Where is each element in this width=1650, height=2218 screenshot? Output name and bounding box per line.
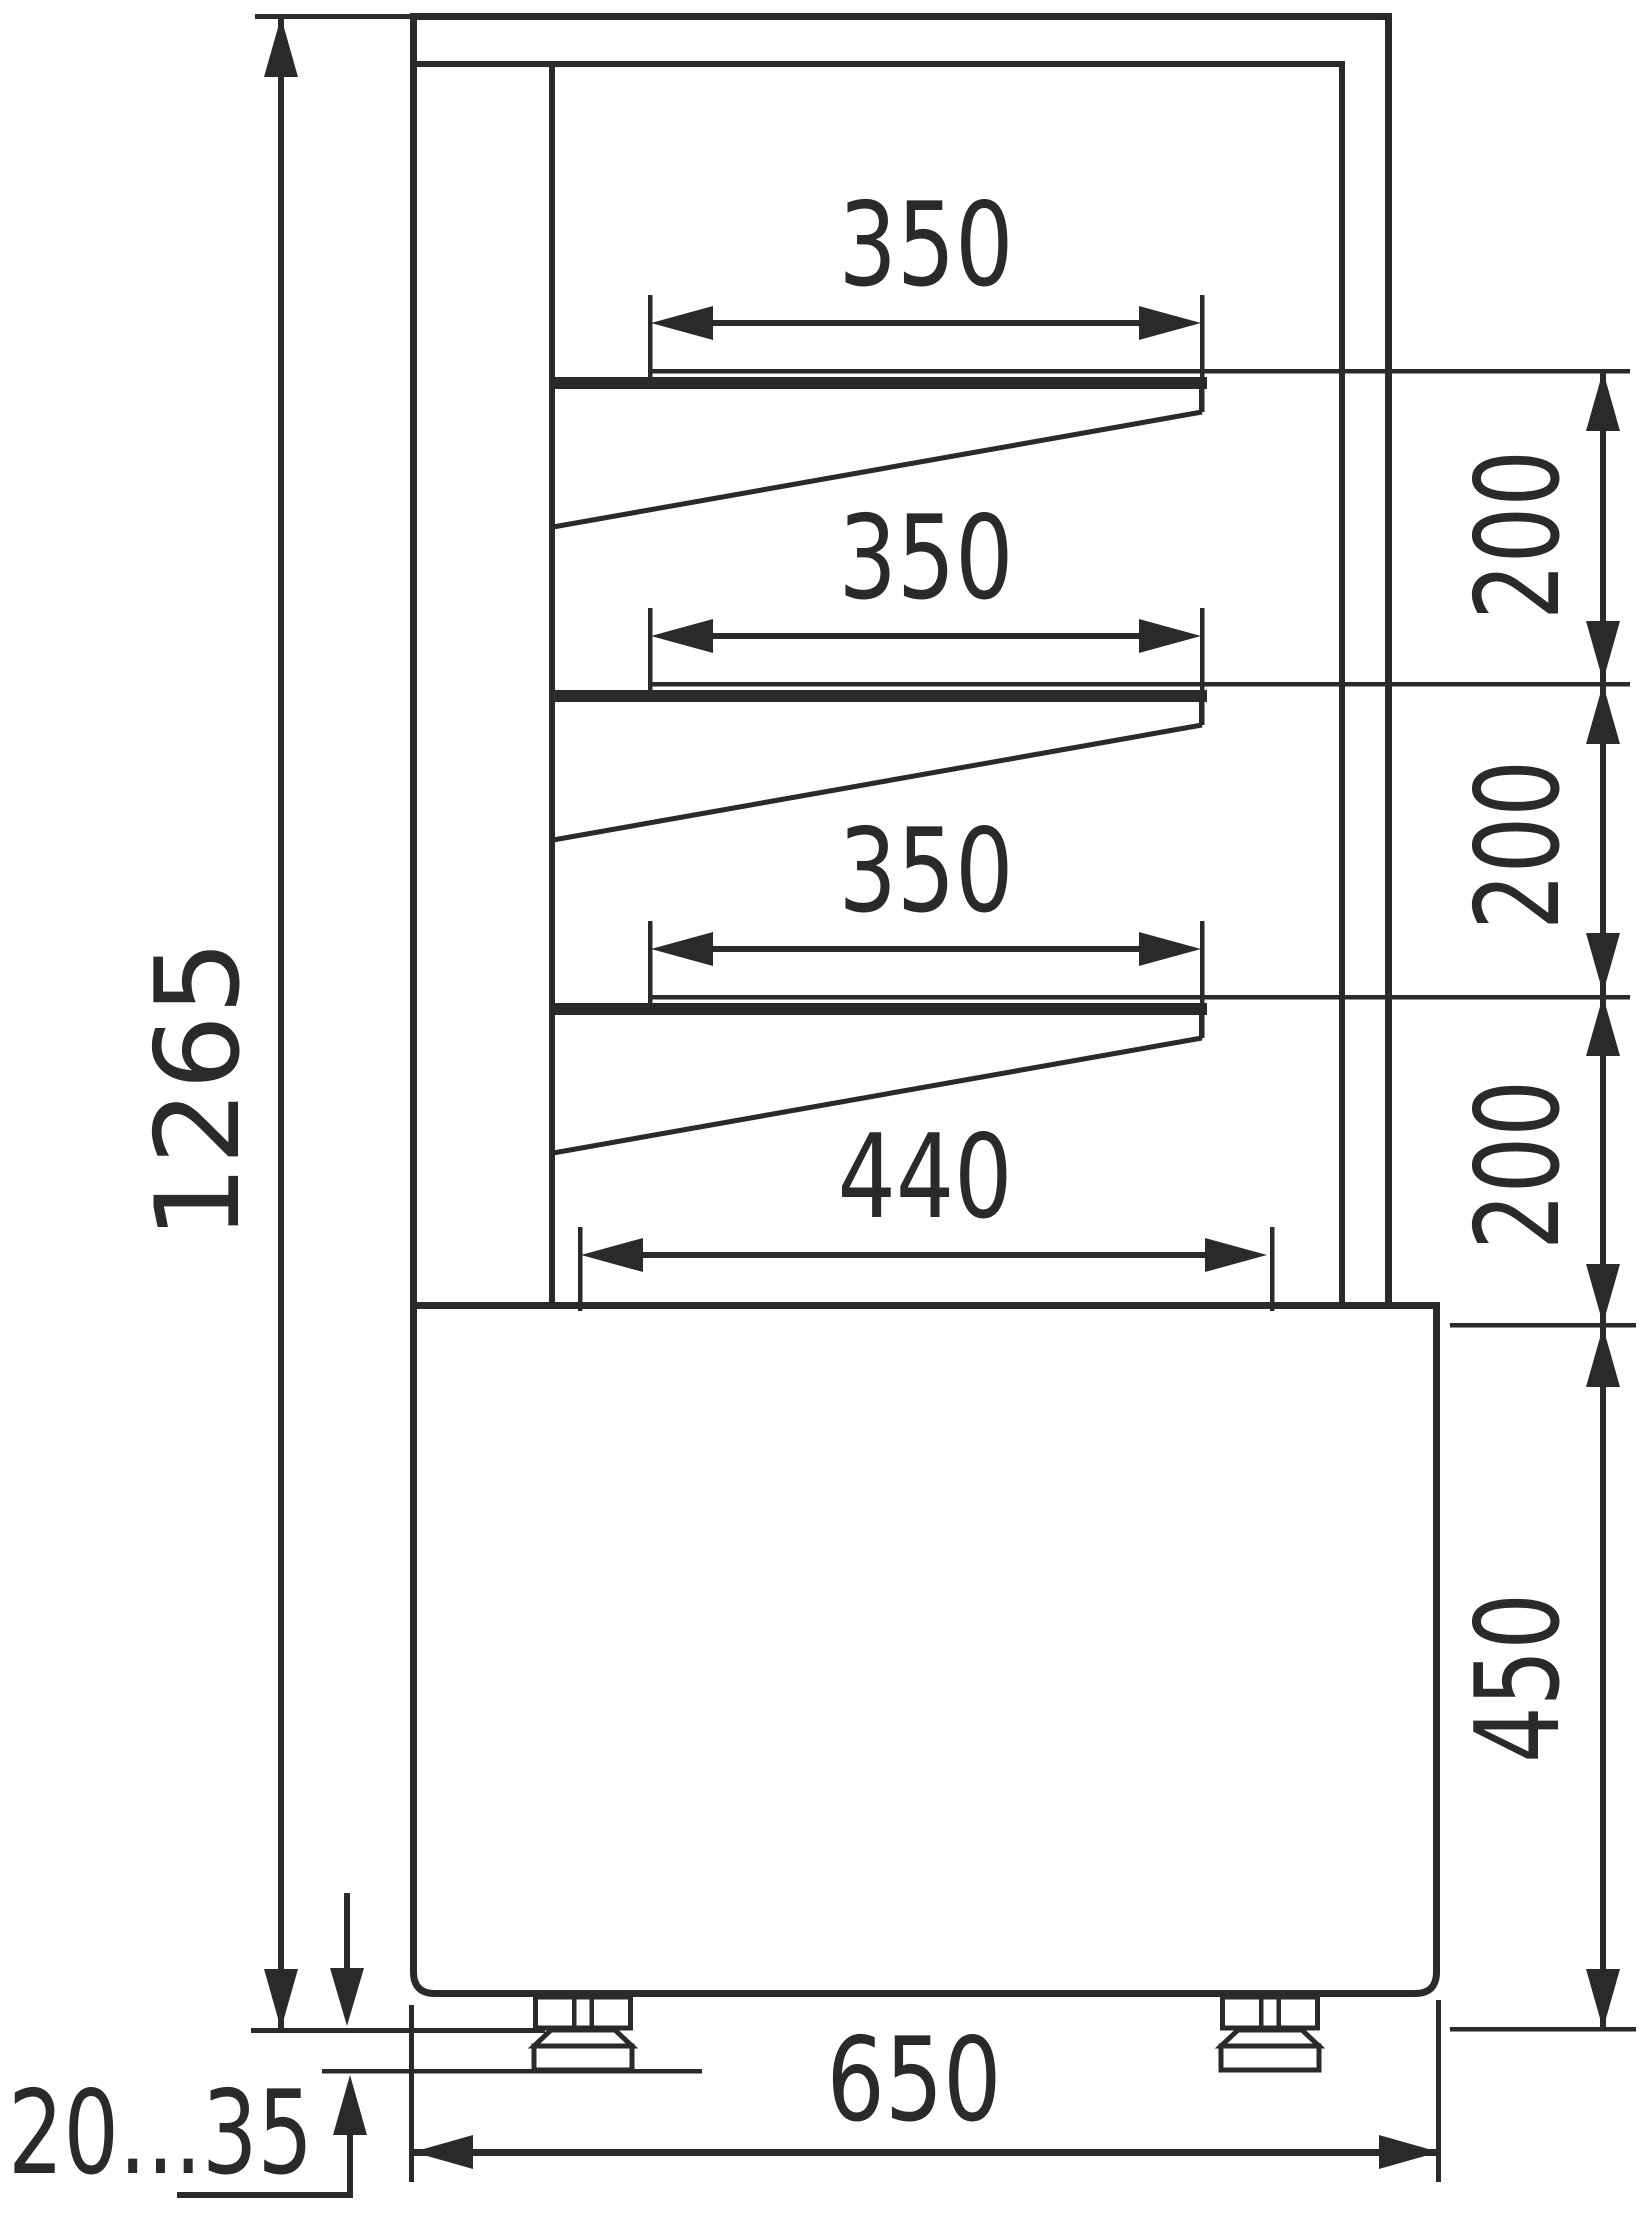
- dimension-shelf-3-depth: 350: [648, 804, 1205, 1008]
- foot-right-screw: [1223, 1997, 1318, 2028]
- shelf-2-dim-line: [708, 633, 1144, 639]
- deck-dim-tick-left: [578, 1227, 583, 1311]
- dimension-right-column: 200 200 200 450: [1450, 370, 1636, 2032]
- gap1-arrow-up: [1586, 371, 1620, 431]
- shelf-2-dim-tick-right: [1200, 608, 1205, 695]
- gap3-arrow-up: [1586, 996, 1620, 1056]
- deck-dim-line: [638, 1252, 1232, 1258]
- deck-arrow-left: [581, 1238, 643, 1272]
- right-dimension-line: [1600, 370, 1606, 2030]
- adjustable-foot-right: [1221, 1997, 1319, 2070]
- base-bottom-extension-line: [1450, 2027, 1636, 2032]
- gap3-arrow-down: [1586, 1264, 1620, 1324]
- shelf-1-dim-tick-left: [648, 295, 653, 382]
- foot-left-pad: [534, 2046, 632, 2070]
- dimension-shelf-2-depth: 350: [648, 491, 1205, 695]
- height-dimension-label: 1265: [131, 940, 266, 1240]
- feet-range-arrow-up: [333, 2075, 367, 2135]
- shelf-2-top-extension-line: [650, 682, 1630, 687]
- shelf-1-depth-label: 350: [839, 178, 1014, 313]
- deck-arrow-right: [1205, 1238, 1267, 1272]
- foot-left-screw-line-b: [590, 1997, 595, 2028]
- base-body-outline: [414, 1302, 1437, 1994]
- shelf-1-arrow-right: [1139, 306, 1201, 340]
- foot-right-screw-line-b: [1277, 1997, 1282, 2028]
- counter-extension-line: [1450, 1323, 1636, 1328]
- shelf-1-dim-tick-right: [1200, 295, 1205, 382]
- height-dimension-line: [278, 16, 284, 2030]
- base-height-arrow-up: [1586, 1327, 1620, 1387]
- shelf-1-arrow-left: [651, 306, 713, 340]
- shelf-3-arrow-right: [1139, 932, 1201, 966]
- shelf-3-dim-tick-right: [1200, 921, 1205, 1008]
- height-arrow-down: [264, 1969, 298, 2029]
- shelf-3-arrow-left: [651, 932, 713, 966]
- base-top-line: [410, 1302, 1440, 1309]
- feet-range-lower-shaft: [347, 2133, 353, 2195]
- dimension-shelf-1-depth: 350: [648, 178, 1205, 382]
- display-case-dimension-drawing: 1265 350 350 350 440: [0, 0, 1650, 2218]
- right-wall-outer-line: [1385, 13, 1392, 1305]
- shelf-2-dim-tick-left: [648, 608, 653, 695]
- top-panel-outer-line: [410, 13, 1392, 20]
- feet-range-arrow-down: [330, 1968, 364, 2026]
- height-bottom-extension-line: [251, 2028, 545, 2033]
- shelf-3-dim-tick-left: [648, 921, 653, 1008]
- depth-arrow-right: [1379, 2135, 1439, 2169]
- shelf-3-depth-label: 350: [839, 804, 1014, 939]
- gap1-label: 200: [1451, 450, 1586, 620]
- deck-depth-label: 440: [838, 1110, 1013, 1245]
- base-height-label: 450: [1451, 1593, 1586, 1763]
- feet-range-upper-shaft: [344, 1893, 350, 1969]
- shelf-1-front-edge: [1199, 389, 1205, 412]
- left-inner-wall-line: [549, 61, 555, 1305]
- shelf-2-arrow-left: [651, 619, 713, 653]
- shelf-2-depth-label: 350: [839, 491, 1014, 626]
- depth-label: 650: [827, 2013, 1002, 2148]
- left-wall: [410, 13, 417, 1305]
- dimension-overall-height: 1265: [131, 16, 545, 2033]
- gap2-arrow-down: [1586, 933, 1620, 993]
- shelf-3-front-edge: [1199, 1015, 1205, 1038]
- shelf-1-dim-line: [708, 320, 1144, 326]
- shelf-2-front-edge: [1199, 702, 1205, 725]
- shelf-1-top-extension-line: [650, 369, 1630, 374]
- shelf-3-top-extension-line: [650, 995, 1630, 1000]
- shelf-2-arrow-right: [1139, 619, 1201, 653]
- feet-range-label: 20...35: [8, 2066, 313, 2201]
- technical-drawing-page: 1265 350 350 350 440: [0, 0, 1650, 2218]
- gap3-label: 200: [1451, 1080, 1586, 1250]
- dimension-bottom-deck: 440: [578, 1110, 1275, 1311]
- depth-dim-line: [412, 2149, 1440, 2156]
- foot-right-screw-line-a: [1259, 1997, 1264, 2028]
- shelf-3-dim-line: [708, 946, 1144, 952]
- base-height-arrow-down: [1586, 1969, 1620, 2029]
- depth-arrow-left: [413, 2135, 473, 2169]
- foot-left-screw-line-a: [572, 1997, 577, 2028]
- height-arrow-up: [264, 17, 298, 77]
- gap2-arrow-up: [1586, 684, 1620, 744]
- foot-left-screw: [536, 1997, 631, 2028]
- floor-extension-line: [322, 2069, 702, 2074]
- adjustable-foot-left: [534, 1997, 632, 2070]
- top-panel-inner-line: [417, 61, 1345, 67]
- gap1-arrow-down: [1586, 621, 1620, 681]
- foot-right-pad: [1221, 2046, 1319, 2070]
- gap2-label: 200: [1451, 760, 1586, 930]
- deck-dim-tick-right: [1270, 1227, 1275, 1311]
